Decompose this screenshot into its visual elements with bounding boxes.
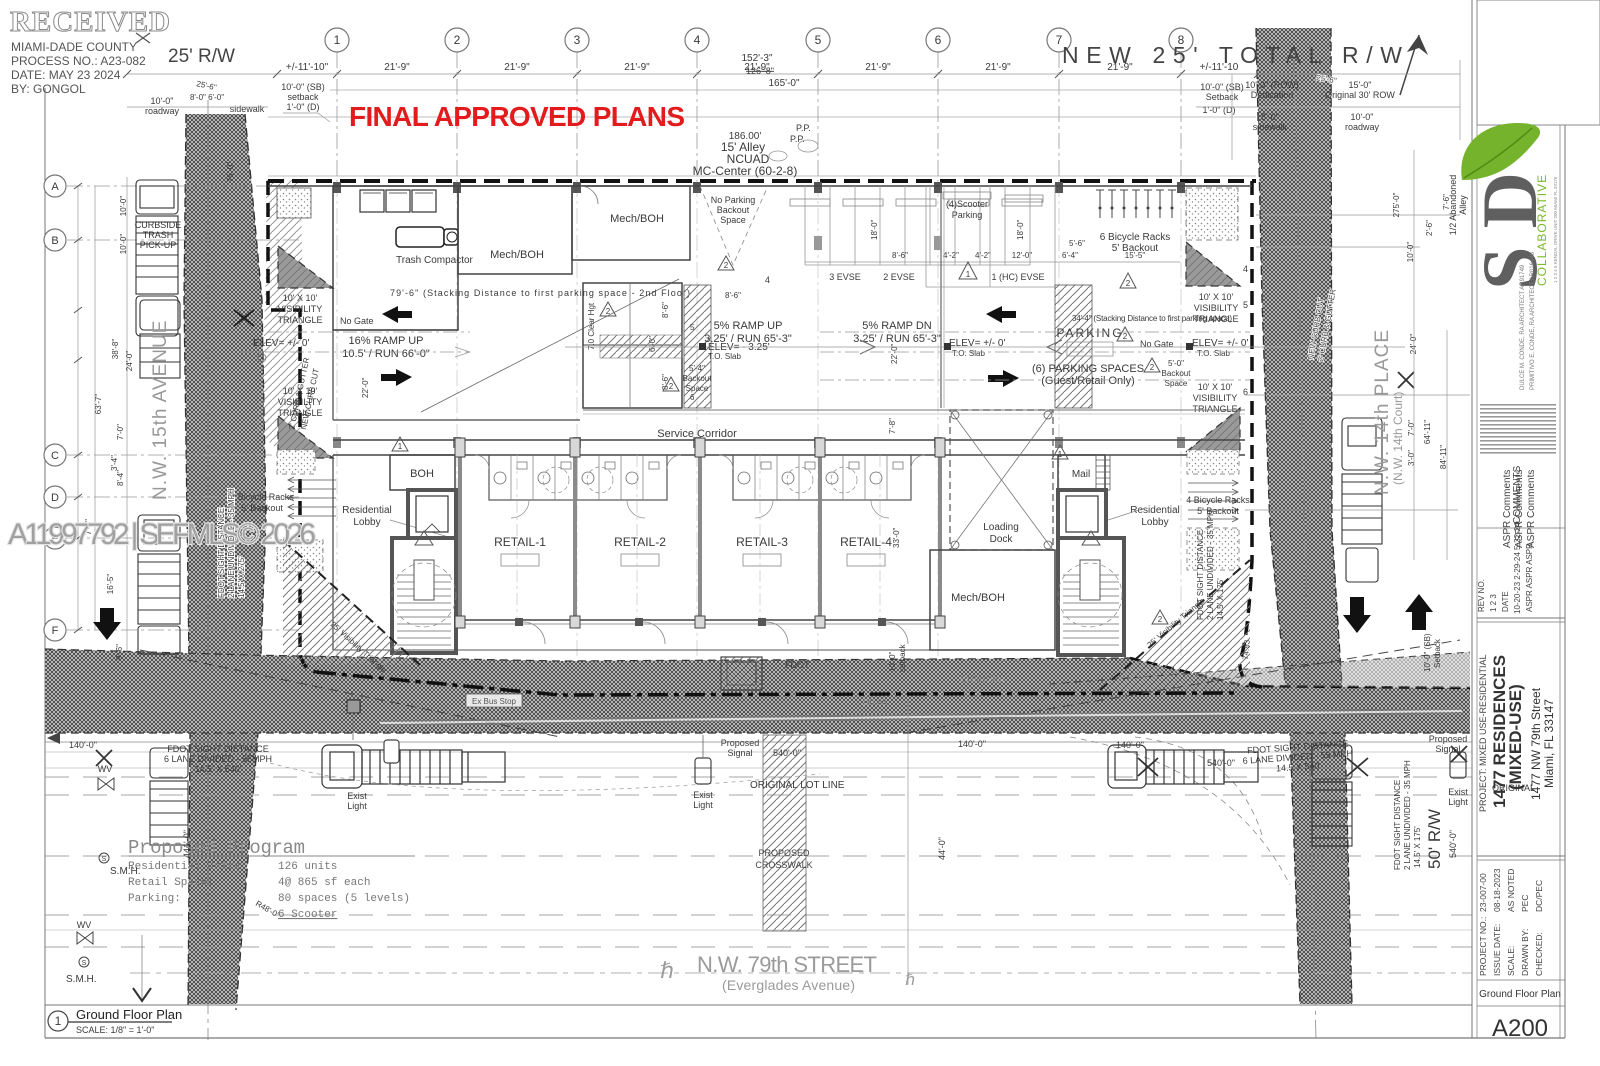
svg-text:Mech/BOH: Mech/BOH [951,592,1005,604]
svg-text:RETAIL-2: RETAIL-2 [614,535,666,549]
svg-text:Retail Space:: Retail Space: [128,877,214,889]
svg-text:14.5' X 175': 14.5' X 175' [1216,578,1225,620]
svg-text:setback: setback [898,643,907,672]
svg-text:FDOT: FDOT [785,660,810,670]
svg-text:2: 2 [669,382,674,391]
svg-text:3'-0": 3'-0" [1407,450,1416,466]
svg-text:1 2 3 4 5 KENDAL DRIVE UNIT 2: 1 2 3 4 5 KENDAL DRIVE UNIT 200 MIAMI FL… [1553,176,1558,283]
svg-text:140'-0": 140'-0" [69,740,97,750]
svg-text:S.M.H.: S.M.H. [66,974,97,985]
svg-text:18'-0": 18'-0" [870,219,879,240]
svg-text:DRAWN BY:: DRAWN BY: [1520,929,1530,976]
svg-text:(4)Scooter: (4)Scooter [946,199,988,209]
svg-text:ASPR Comments: ASPR Comments [1502,470,1513,548]
svg-text:14.5' X 175': 14.5' X 175' [1413,826,1422,868]
svg-text:Signal: Signal [727,748,752,758]
svg-text:N.W. 15th AVENUE: N.W. 15th AVENUE [150,320,171,500]
svg-text:ISSUE DATE:: ISSUE DATE: [1492,924,1502,976]
svg-text:CHECKED:: CHECKED: [1534,932,1544,976]
svg-text:Light: Light [1448,797,1468,807]
svg-text:6'-4": 6'-4" [1062,251,1078,260]
svg-text:2: 2 [606,307,611,316]
svg-text:MIAMI-DADE COUNTY: MIAMI-DADE COUNTY [11,40,137,54]
svg-text:Setback: Setback [1433,638,1442,668]
svg-text:21'-9": 21'-9" [985,62,1011,73]
svg-text:NEW 25' TOTAL R/W: NEW 25' TOTAL R/W [1062,42,1402,68]
svg-text:BOH: BOH [410,468,434,480]
svg-text:DATE: MAY 23 2024: DATE: MAY 23 2024 [11,68,121,82]
svg-text:T.O. Slab: T.O. Slab [1197,349,1230,358]
svg-text:1: 1 [966,270,971,279]
svg-text:Residential: Residential [342,505,391,516]
svg-text:2: 2 [1123,332,1128,341]
svg-text:Ex Bus Stop: Ex Bus Stop [960,675,1005,684]
svg-text:23-007-00: 23-007-00 [1478,873,1488,912]
svg-text:Setback: Setback [1206,92,1239,102]
svg-text:ℏ: ℏ [905,972,915,989]
svg-text:REV NO.: REV NO. [1477,579,1486,612]
svg-text:34'-4" (Stacking Distance to f: 34'-4" (Stacking Distance to first parki… [1072,314,1232,323]
svg-text:1477 NW 79th Street: 1477 NW 79th Street [1529,687,1543,800]
svg-text:ORIGINAL LOT LINE: ORIGINAL LOT LINE [750,780,845,791]
svg-text:16'-5": 16'-5" [106,574,115,595]
svg-text:PROJECT: MIXED USE-RESIDENTIAL: PROJECT: MIXED USE-RESIDENTIAL [1478,654,1488,812]
svg-text:10' X 10': 10' X 10' [283,293,318,303]
svg-text:Parking:: Parking: [128,893,181,905]
svg-text:275'-0": 275'-0" [1392,192,1401,217]
svg-text:5'-0": 5'-0" [1168,359,1184,368]
svg-text:B: B [51,235,58,247]
svg-text:+/-11'-10": +/-11'-10" [286,62,329,73]
svg-text:44'-0": 44'-0" [937,837,947,860]
svg-text:14.5' X 275': 14.5' X 275' [237,556,246,598]
svg-text:Miami, FL 33147: Miami, FL 33147 [1542,699,1556,788]
svg-text:22'-0": 22'-0" [890,343,899,364]
svg-text:33'-0": 33'-0" [892,527,901,548]
svg-text:6 LANE DIVIDED - 55MPH: 6 LANE DIVIDED - 55MPH [164,754,272,764]
svg-text:3: 3 [574,33,581,47]
svg-text:24'-0": 24'-0" [125,351,134,372]
svg-text:Space: Space [720,215,746,225]
svg-text:181.83: 181.83 [862,698,887,707]
svg-text:SCALE: 1/8" = 1'-0": SCALE: 1/8" = 1'-0" [76,1025,154,1035]
svg-text:ℏ: ℏ [660,958,674,983]
svg-text:CROSSWALK: CROSSWALK [755,860,812,870]
svg-text:14.5' X 540': 14.5' X 540' [195,764,242,774]
svg-text:PROJECT NO.:: PROJECT NO.: [1478,917,1488,976]
svg-text:VISIBILITY: VISIBILITY [1194,303,1239,313]
svg-text:12'-0": 12'-0" [1012,251,1033,260]
svg-text:08-18-2023: 08-18-2023 [1492,868,1502,912]
svg-text:ELEV= +/- 0': ELEV= +/- 0' [253,338,309,349]
svg-text:BY: GONGOL: BY: GONGOL [11,82,86,96]
svg-text:21'-9": 21'-9" [504,62,530,73]
svg-text:WV: WV [98,764,113,774]
svg-text:DATE: DATE [1501,591,1510,612]
svg-text:Ex Bus Stop: Ex Bus Stop [472,697,517,706]
svg-text:18'-0": 18'-0" [1016,219,1025,240]
svg-text:SCALE:: SCALE: [1506,946,1516,976]
svg-text:2: 2 [1150,363,1155,372]
svg-text:MC-Center (60-2-8): MC-Center (60-2-8) [693,164,798,178]
svg-text:Mech/BOH: Mech/BOH [610,213,664,225]
svg-text:sidewalk: sidewalk [230,104,265,114]
svg-text:PEC: PEC [1520,895,1530,912]
svg-text:T.O. Slab: T.O. Slab [952,349,985,358]
svg-text:6: 6 [690,393,695,402]
svg-text:6: 6 [1243,387,1248,397]
svg-text:2 EVSE: 2 EVSE [883,272,915,282]
svg-text:2 LANE UNDIVIDED - 35 MPH: 2 LANE UNDIVIDED - 35 MPH [1206,510,1215,620]
svg-text:N.W. 14th PLACE: N.W. 14th PLACE [1372,329,1393,495]
svg-text:22'-0": 22'-0" [361,377,370,398]
svg-text:PROPOSED: PROPOSED [758,848,810,858]
svg-text:8'-6": 8'-6" [892,251,908,260]
svg-text:S: S [102,856,107,863]
svg-text:4@ 865 sf each: 4@ 865 sf each [278,877,370,889]
svg-text:8'-4": 8'-4" [116,470,125,486]
svg-text:10'-0": 10'-0" [151,96,174,106]
svg-text:1 (HC) EVSE: 1 (HC) EVSE [991,272,1044,282]
svg-text:Original 30' ROW: Original 30' ROW [1325,90,1395,100]
svg-text:5' Backout: 5' Backout [241,503,283,513]
svg-text:8'-6": 8'-6" [725,291,741,300]
svg-text:152'-3": 152'-3" [741,53,772,64]
svg-text:2: 2 [454,33,461,47]
svg-text:10.5' / RUN 66'-0": 10.5' / RUN 66'-0" [342,348,430,360]
svg-text:6: 6 [935,33,942,47]
svg-text:15'-0": 15'-0" [1349,80,1372,90]
svg-text:7'-8": 7'-8" [888,418,897,434]
svg-text:6 Bicycle Racks: 6 Bicycle Racks [1100,232,1171,243]
svg-text:sidewalk: sidewalk [1253,122,1288,132]
svg-text:Light: Light [693,800,713,810]
svg-text:RECEIVED: RECEIVED [10,6,170,38]
svg-text:Lobby: Lobby [353,517,380,528]
svg-text:2'-6": 2'-6" [1425,220,1434,236]
svg-text:165'-0": 165'-0" [768,78,799,89]
svg-text:64'-11": 64'-11" [1423,420,1432,444]
svg-text:S: S [82,960,87,967]
svg-text:10' X 10': 10' X 10' [1198,382,1233,392]
svg-text:PICK-UP: PICK-UP [140,240,177,250]
svg-text:VISIBILITY: VISIBILITY [278,304,323,314]
svg-text:PROCESS NO.: A23-082: PROCESS NO.: A23-082 [11,54,146,68]
svg-text:10'-0": 10'-0" [1351,112,1374,122]
svg-text:10'-0" (SB): 10'-0" (SB) [281,82,324,92]
svg-text:16% RAMP UP: 16% RAMP UP [349,335,424,347]
svg-text:RETAIL-3: RETAIL-3 [736,535,788,549]
svg-text:9'-6": 9'-6" [115,644,124,660]
svg-text:2: 2 [1158,615,1163,624]
svg-text:ASPR Comments: ASPR Comments [1526,470,1537,548]
svg-text:50' R/W: 50' R/W [1425,809,1444,869]
svg-text:2 LANE UNDIVIDED - 35 MPH: 2 LANE UNDIVIDED - 35 MPH [1403,760,1412,870]
svg-text:No Gate: No Gate [1140,339,1174,349]
svg-text:PRIMITIVO E. CONDE, RA ARCHITE: PRIMITIVO E. CONDE, RA ARCHITECT AR01644… [1530,251,1536,390]
svg-text:A200: A200 [1492,1015,1548,1042]
svg-text:roadway: roadway [145,106,180,116]
svg-text:A11997792 | SEFMLS© 2026: A11997792 | SEFMLS© 2026 [8,518,316,551]
svg-text:5% RAMP DN: 5% RAMP DN [862,320,932,332]
svg-text:roadway: roadway [1345,122,1380,132]
svg-text:TRIANGLE: TRIANGLE [1192,404,1237,414]
svg-text:10'-0" (SB): 10'-0" (SB) [1200,82,1243,92]
svg-text:5'-6": 5'-6" [1069,239,1085,248]
svg-text:Loading: Loading [983,522,1019,533]
svg-text:8'-0": 8'-0" [1261,112,1279,122]
svg-text:80 spaces (5 levels): 80 spaces (5 levels) [278,893,410,905]
svg-text:A: A [51,181,59,193]
svg-text:38'-8": 38'-8" [111,339,120,360]
svg-text:Trash Compactor: Trash Compactor [396,255,474,266]
svg-text:2: 2 [1126,279,1131,288]
svg-text:Alley: Alley [1458,195,1468,215]
svg-text:4: 4 [1243,264,1248,274]
svg-text:75'-0": 75'-0" [226,162,235,183]
svg-text:(6) PARKING SPACES: (6) PARKING SPACES [1032,363,1144,375]
svg-text:Space: Space [686,384,709,393]
svg-text:Signal: Signal [1435,744,1460,754]
svg-text:TRIANGLE: TRIANGLE [277,315,322,325]
svg-text:D: D [51,492,59,504]
svg-text:10'-0" (SB): 10'-0" (SB) [1423,633,1432,672]
svg-text:PARKING: PARKING [1056,326,1123,340]
svg-text:10'-0" (ROW): 10'-0" (ROW) [1245,80,1298,90]
svg-text:Exist: Exist [347,791,367,801]
svg-text:10-20-23 2-29-24 5-22-24: 10-20-23 2-29-24 5-22-24 [1513,522,1522,614]
svg-text:WV: WV [77,920,92,930]
svg-text:Ground Floor Plan: Ground Floor Plan [76,1007,182,1022]
svg-text:C: C [51,450,59,462]
svg-text:7'-0": 7'-0" [116,424,125,440]
svg-text:T.O. Slab: T.O. Slab [708,352,741,361]
svg-text:10'-0": 10'-0" [119,196,128,217]
svg-text:S.M.H.: S.M.H. [110,866,141,877]
svg-text:4: 4 [765,275,770,285]
svg-text:P.P.: P.P. [796,123,811,133]
svg-text:10'-0": 10'-0" [119,234,128,255]
svg-text:540'-0": 540'-0" [773,748,801,758]
svg-text:4: 4 [694,33,701,47]
svg-text:No Parking: No Parking [711,195,756,205]
svg-text:Mail: Mail [1072,469,1090,480]
svg-text:540'-0": 540'-0" [1207,758,1235,768]
svg-text:8'-0" 6'-0": 8'-0" 6'-0" [190,93,224,102]
svg-text:126 units: 126 units [278,861,337,873]
svg-text:7'-0": 7'-0" [1407,420,1416,436]
svg-text:CURBSIDE: CURBSIDE [135,220,182,230]
svg-text:TRASH: TRASH [143,230,174,240]
svg-text:24'-0": 24'-0" [1409,334,1418,355]
svg-text:10' X 10': 10' X 10' [1199,292,1234,302]
svg-text:1: 1 [398,442,403,451]
svg-text:(Everglades Avenue): (Everglades Avenue) [722,977,855,993]
svg-text:1 2 3: 1 2 3 [1489,594,1498,612]
svg-text:5: 5 [815,33,822,47]
svg-text:5' Backout: 5' Backout [1112,243,1159,254]
svg-text:Mech/BOH: Mech/BOH [490,249,544,261]
svg-text:5% RAMP UP: 5% RAMP UP [714,320,783,332]
svg-text:COLLABORATIVE: COLLABORATIVE [1535,174,1549,286]
svg-text:6 Scooter: 6 Scooter [278,909,337,921]
svg-text:21'-9": 21'-9" [384,62,410,73]
svg-text:5: 5 [1243,300,1248,310]
svg-text:No Gate: No Gate [340,316,374,326]
svg-text:4'-2": 4'-2" [943,251,959,260]
svg-text:FDOT SIGHT DISTANCE: FDOT SIGHT DISTANCE [167,744,269,754]
svg-text:Lobby: Lobby [1141,517,1168,528]
svg-text:setback: setback [287,92,319,102]
svg-text:4 Bicycle Racks: 4 Bicycle Racks [230,492,294,502]
svg-text:Backout: Backout [1162,369,1192,378]
svg-text:RETAIL-1: RETAIL-1 [494,535,546,549]
svg-text:(Guest/Retail Only): (Guest/Retail Only) [1041,375,1135,387]
svg-text:RETAIL-4: RETAIL-4 [840,535,892,549]
svg-text:VISIBILITY: VISIBILITY [1193,393,1238,403]
svg-text:Dock: Dock [990,534,1014,545]
svg-text:P.P.: P.P. [790,134,805,144]
svg-text:FDOT SIGHT DISTANCE: FDOT SIGHT DISTANCE [1196,530,1205,620]
svg-text:2: 2 [724,261,729,270]
svg-text:540'-0": 540'-0" [1448,830,1458,858]
svg-text:1: 1 [55,1014,62,1028]
svg-text:3'-4": 3'-4" [110,455,119,471]
svg-text:Proposed: Proposed [1429,734,1468,744]
svg-text:1/2 Abandoned: 1/2 Abandoned [1448,175,1458,236]
svg-text:1: 1 [1058,450,1063,459]
svg-text:8'-6": 8'-6" [661,302,670,318]
svg-text:1'-0" (D): 1'-0" (D) [287,102,320,112]
svg-text:4'-2": 4'-2" [975,251,991,260]
svg-text:Exist: Exist [1448,787,1468,797]
svg-text:DULCE M. CONDE, RA ARCHITECT: DULCE M. CONDE, RA ARCHITECT AR91749 [1520,264,1526,390]
svg-text:(MIXED-USE): (MIXED-USE) [1506,684,1525,790]
svg-text:Exist: Exist [693,790,713,800]
svg-text:74.93: 74.93 [1241,639,1252,660]
svg-text:7.0 Clear Hgt: 7.0 Clear Hgt [587,302,596,350]
svg-text:5: 5 [690,323,695,332]
svg-text:FINAL APPROVED PLANS: FINAL APPROVED PLANS [349,101,685,132]
svg-text:63'-7": 63'-7" [94,394,103,415]
svg-text:5' Backout: 5' Backout [1197,506,1239,516]
svg-text:Parking: Parking [952,210,983,220]
svg-text:Ground Floor Plan: Ground Floor Plan [1479,989,1561,1000]
svg-text:Light: Light [347,801,367,811]
svg-text:140'-0": 140'-0" [958,739,986,749]
svg-text:Proposed: Proposed [721,738,760,748]
svg-text:Backout: Backout [717,205,750,215]
svg-text:AS NOTED: AS NOTED [1506,869,1516,912]
svg-text:10'-0": 10'-0" [888,651,897,672]
svg-text:21'-9": 21'-9" [624,62,650,73]
svg-text:5'-4": 5'-4" [689,364,705,373]
svg-text:ASPR ASPR ASPR: ASPR ASPR ASPR [1525,543,1534,612]
svg-text:4 Bicycle Racks: 4 Bicycle Racks [1186,495,1250,505]
svg-text:Residential Units: Residential Units [128,861,240,873]
svg-text:Backout: Backout [683,374,713,383]
svg-text:Dedication: Dedication [1251,90,1294,100]
svg-text:1: 1 [334,33,341,47]
svg-text:21'-9": 21'-9" [865,62,891,73]
svg-text:1'-0" (D): 1'-0" (D) [1203,105,1236,115]
svg-text:3 EVSE: 3 EVSE [829,272,861,282]
svg-text:(N.W. 14th Court): (N.W. 14th Court) [1391,392,1405,485]
svg-text:126'-8": 126'-8" [746,66,774,76]
svg-text:FDOT SIGHT DISTANCE: FDOT SIGHT DISTANCE [1393,780,1402,870]
svg-text:DC/PEC: DC/PEC [1534,880,1544,912]
svg-text:25' R/W: 25' R/W [168,46,235,67]
svg-text:F: F [52,625,59,637]
